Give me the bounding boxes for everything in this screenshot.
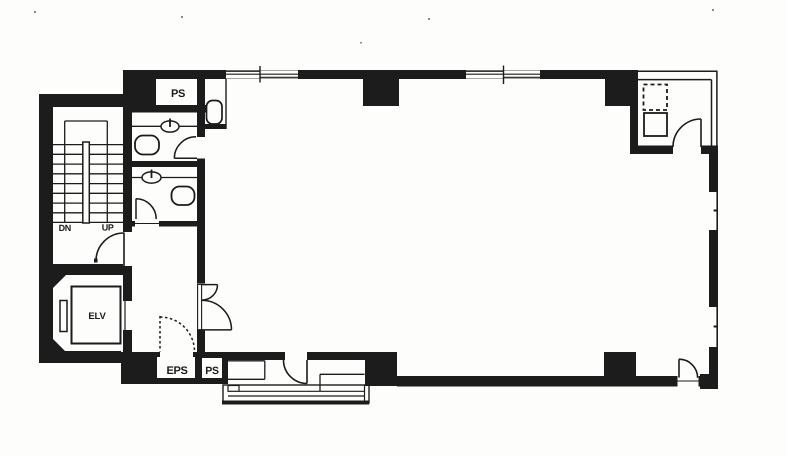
svg-text:PS: PS: [205, 365, 219, 377]
svg-text:UP: UP: [102, 223, 114, 233]
svg-text:EPS: EPS: [166, 365, 187, 377]
svg-text:DN: DN: [59, 223, 71, 233]
svg-text:PS: PS: [171, 88, 185, 100]
svg-text:ELV: ELV: [88, 311, 106, 322]
